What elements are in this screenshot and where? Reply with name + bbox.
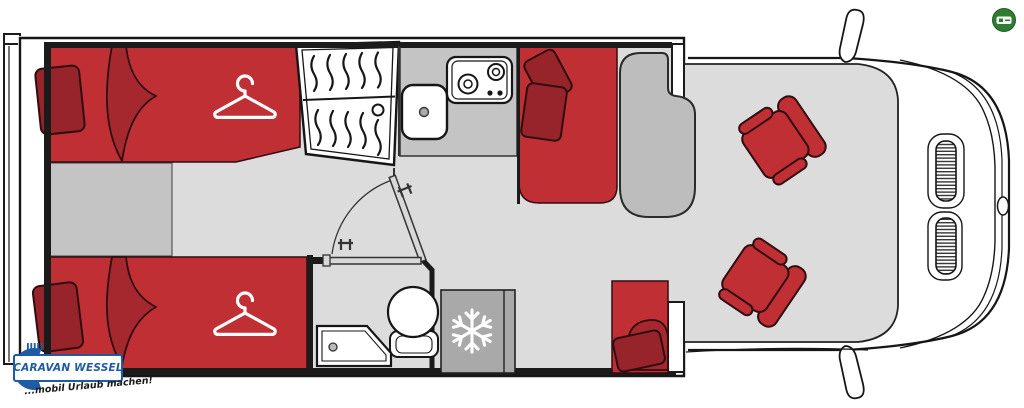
headlight-bottom (928, 212, 962, 280)
sink (402, 85, 447, 139)
mirror-top (840, 10, 864, 62)
motorhome-floorplan-figure: CARAVAN WESSEL ...mobil Urlaub machen! (0, 0, 1024, 408)
door-hinge (323, 255, 330, 266)
front-emblem (998, 197, 1009, 215)
mirror-bottom (840, 346, 864, 398)
toilet (388, 287, 438, 357)
side-seat (612, 281, 668, 373)
pillow (35, 65, 86, 135)
stove (447, 57, 512, 103)
headlight-top (928, 134, 964, 208)
pillow (520, 82, 567, 141)
dealer-logo: CARAVAN WESSEL ...mobil Urlaub machen! (0, 340, 150, 406)
fridge (441, 290, 515, 373)
dinette-bench (519, 46, 617, 203)
bed-rear-top (35, 46, 300, 162)
rear-bumper (4, 34, 20, 364)
wardrobe-shelves (296, 42, 399, 165)
logo-wordmark: CARAVAN WESSEL (13, 354, 123, 382)
floorplan-svg (0, 0, 1024, 408)
wall-return-top (672, 44, 684, 98)
wall-return-bottom (668, 302, 684, 372)
sink-drain (420, 108, 429, 117)
kitchen-block (400, 46, 517, 156)
bed-step-platform (46, 163, 172, 256)
shelf-knob (373, 105, 384, 116)
green-emissions-badge-icon (993, 9, 1016, 32)
bathroom-door-closed (329, 258, 421, 265)
